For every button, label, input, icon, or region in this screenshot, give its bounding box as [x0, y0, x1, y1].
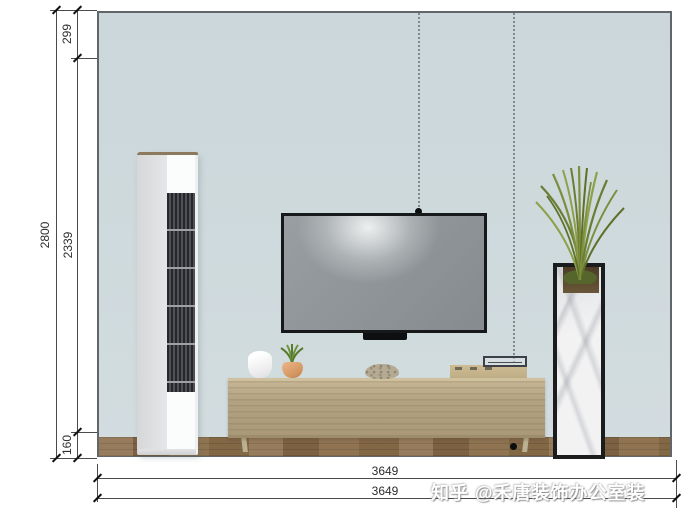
dim-label-2339: 2339 [61, 223, 75, 267]
dim-label-299: 299 [60, 17, 74, 51]
radio-lid [483, 356, 527, 367]
dim-ext-right [676, 460, 677, 508]
dim-line-vertical-segments [77, 10, 78, 458]
tv-cabinet [228, 378, 545, 438]
pendant-drop-line-left [418, 13, 420, 207]
tv-screen [281, 213, 487, 333]
potted-plant-leaves [278, 344, 306, 364]
marble-planter [553, 263, 605, 459]
dim-label-160: 160 [60, 428, 74, 462]
dim-label-2800: 2800 [38, 213, 52, 257]
elevation-drawing: 2800 299 2339 160 3649 3649 知乎 @禾唐装饰办公室装 [0, 0, 700, 519]
dim-label-3649-top: 3649 [355, 464, 415, 478]
watermark-text: 知乎 @禾唐装饰办公室装 [431, 479, 646, 505]
dim-label-3649-bottom: 3649 [355, 484, 415, 498]
tv-soundbar [363, 333, 407, 340]
air-conditioner-right-column [167, 155, 195, 452]
grass-plant [533, 166, 627, 284]
white-vase [248, 351, 272, 378]
air-conditioner-vent [167, 193, 195, 392]
pendant-light-dot-right [510, 443, 517, 450]
air-conditioner [137, 152, 198, 455]
radio-lid-line [488, 362, 522, 363]
dim-line-vertical-total [56, 10, 57, 458]
air-conditioner-base [139, 449, 196, 455]
stone-bowl [365, 364, 399, 379]
radio-buttons [455, 367, 497, 370]
